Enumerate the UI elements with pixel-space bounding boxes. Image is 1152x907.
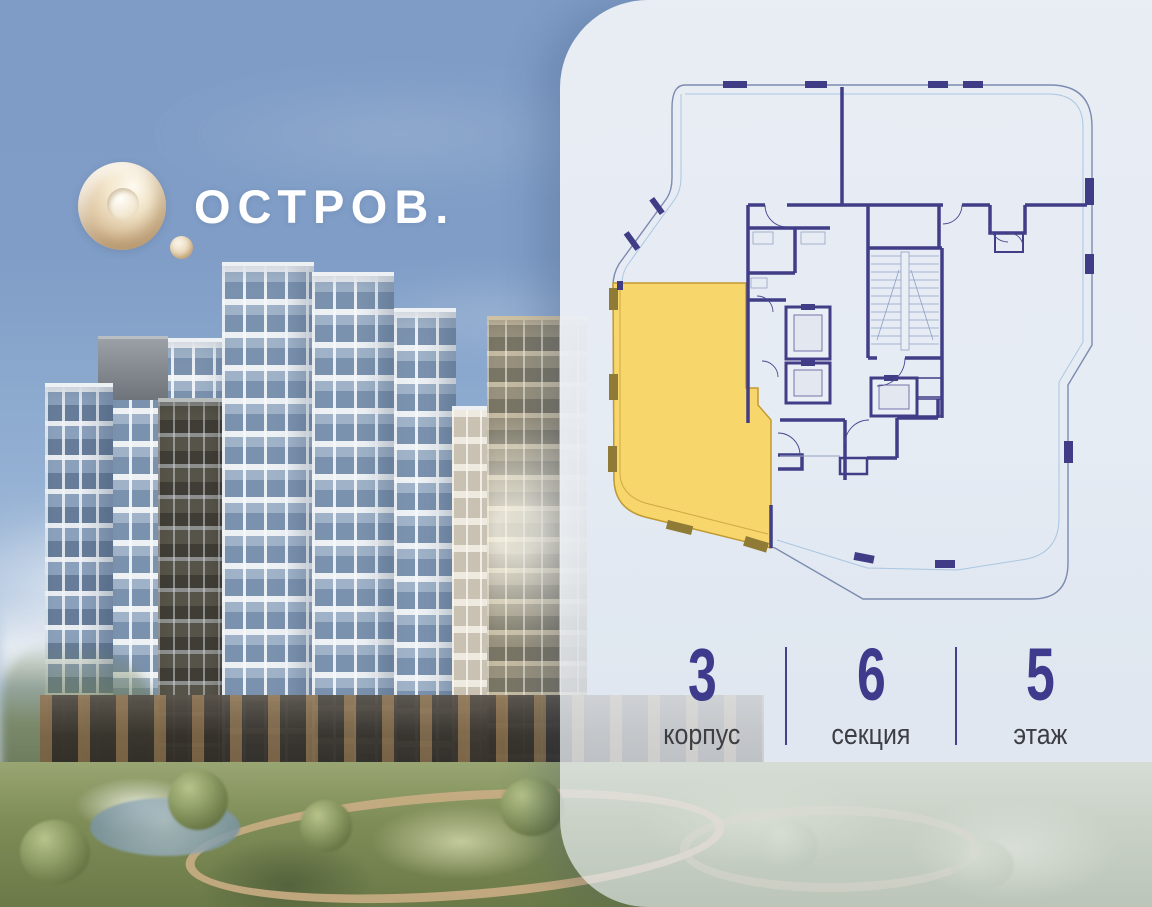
tree [300,800,352,852]
info-floor: 5 этаж [957,642,1124,752]
brand-name: ОСТРОВ. [194,179,455,234]
section-number: 6 [857,642,885,709]
floor-number: 5 [1026,642,1054,709]
logo-ring-icon [78,162,166,250]
info-section: 6 секция [787,642,954,752]
logo-dot-icon [170,236,193,259]
staircase [871,252,939,350]
floorplan-panel: 3 корпус 6 секция 5 этаж [560,0,1152,907]
apartment-info: 3 корпус 6 секция 5 этаж [618,642,1124,752]
section-label: секция [831,719,910,752]
building-number: 3 [688,642,716,709]
info-building: 3 корпус [618,642,785,752]
closet-walls [995,233,1023,252]
brand-logo: ОСТРОВ. [78,158,455,254]
screenshot-root: ОСТРОВ. [0,0,1152,907]
tree [168,770,228,830]
tree [20,820,90,884]
bathroom-fixtures [751,232,825,288]
floorplan [605,78,1105,638]
floor-label: этаж [1013,719,1067,752]
elevators [786,304,942,416]
building-label: корпус [663,719,740,752]
tree [500,778,564,836]
logo-ring-hole [107,188,139,220]
